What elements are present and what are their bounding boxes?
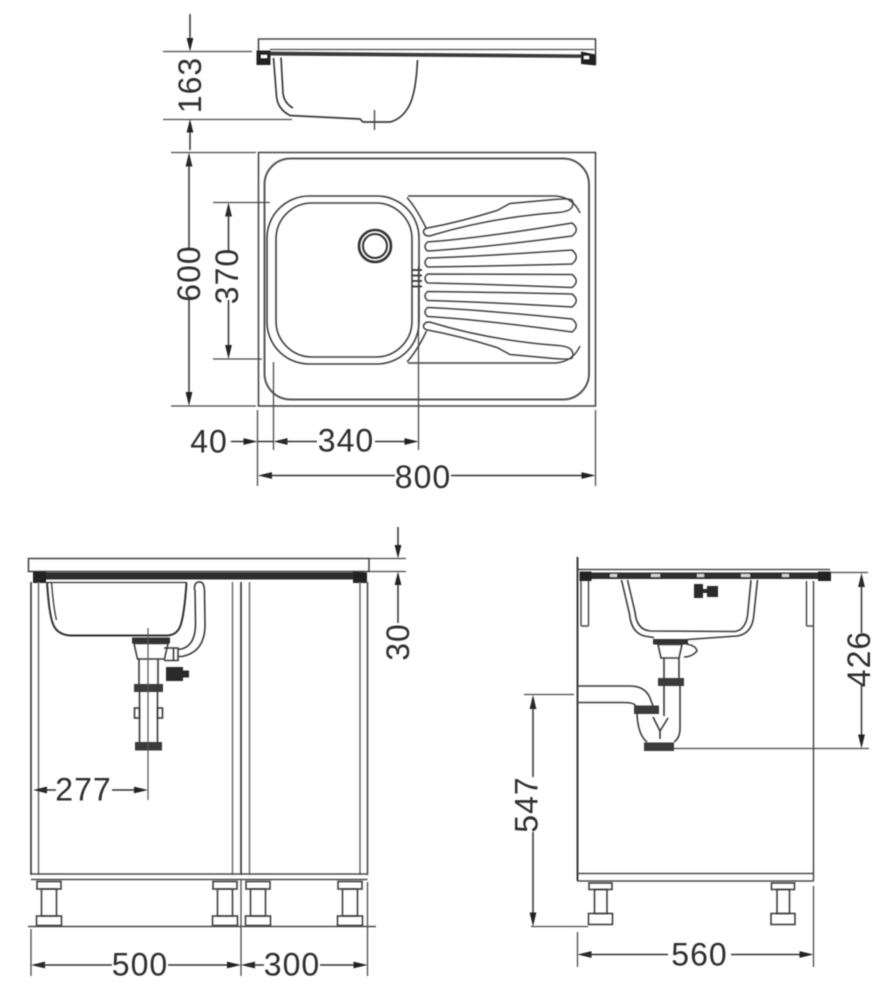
svg-text:560: 560 [671, 937, 727, 973]
svg-text:300: 300 [264, 947, 320, 983]
svg-text:163: 163 [172, 57, 208, 113]
svg-text:40: 40 [190, 424, 228, 460]
svg-text:30: 30 [380, 623, 416, 661]
svg-text:426: 426 [841, 631, 877, 687]
svg-text:370: 370 [209, 248, 245, 304]
svg-text:800: 800 [395, 459, 451, 495]
svg-text:340: 340 [318, 423, 374, 459]
svg-text:600: 600 [171, 245, 207, 301]
svg-text:547: 547 [509, 776, 545, 832]
svg-text:500: 500 [112, 947, 168, 983]
svg-text:277: 277 [55, 772, 111, 808]
